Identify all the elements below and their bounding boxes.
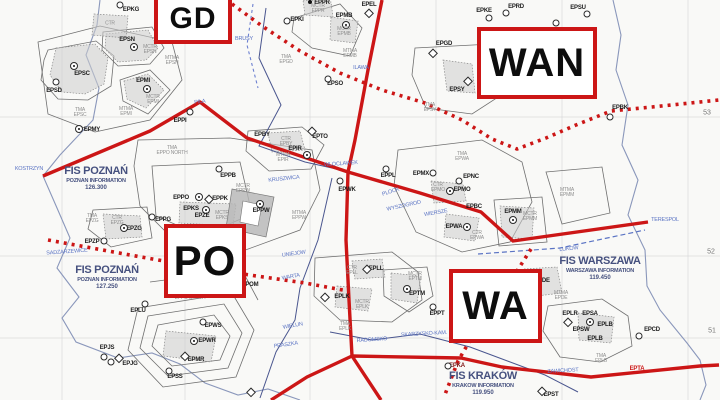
- airfield-circle-dot-icon: [256, 200, 264, 208]
- airfield-label-EPTO: EPTO: [312, 134, 327, 140]
- airfield-label-EPSY: EPSY: [449, 87, 464, 93]
- airfield-label-EPMX: EPMX: [413, 171, 429, 177]
- airfield-label-EPCD: EPCD: [644, 327, 660, 333]
- airfield-label-EPBC: EPBC: [466, 204, 482, 210]
- fis-title: FIS WARSZAWA: [559, 255, 640, 267]
- sector-box-gd: GD: [154, 0, 232, 44]
- town-label-WLOCLAWEK: WLOCLAWEK: [324, 161, 358, 169]
- airfield-circle-icon: [149, 214, 156, 221]
- airspace-zone-label: MTMA EPIR: [276, 153, 290, 164]
- airfield-label-EPMM: EPMM: [504, 209, 521, 215]
- town-label-TERESPOL: TERESPOL: [651, 218, 679, 224]
- airfield-label-EPSU: EPSU: [570, 5, 586, 11]
- airfield-label-EPMB: EPMB: [336, 13, 353, 19]
- town-label-WARTA: WARTA: [282, 274, 301, 283]
- town-label-PILA: PILA: [194, 99, 206, 106]
- airfield-circle-icon: [284, 18, 291, 25]
- sector-box-wa: WA: [449, 269, 542, 343]
- airfield-label-EPPW: EPPW: [253, 208, 270, 214]
- airfield-label-EPJG: EPJG: [122, 361, 137, 367]
- airfield-label-EPKE: EPKE: [476, 8, 492, 14]
- airfield-diamond-icon: [246, 387, 255, 396]
- airspace-zone-label: MCTR EPPR: [311, 4, 325, 15]
- airspace-zone-label: MCTR EPMB: [337, 27, 351, 38]
- airfield-circle-dot-icon: [446, 187, 454, 195]
- airfield-circle-icon: [117, 2, 124, 9]
- town-label-BRUSY: BRUSY: [235, 37, 253, 43]
- airfield-circle-icon: [200, 319, 207, 326]
- town-label-PRASZKA: PRASZKA: [274, 341, 299, 350]
- airfield-circle-dot-icon: [143, 85, 151, 93]
- town-label-ZAWICHOST: ZAWICHOST: [547, 368, 578, 375]
- airfield-label-EPSD: EPSD: [46, 88, 62, 94]
- airfield-label-EPPL: EPPL: [381, 173, 396, 179]
- airspace-zone-label: TMA EPZG: [86, 214, 99, 225]
- airfield-label-EPMI: EPMI: [136, 78, 150, 84]
- airfield-circle-icon: [216, 166, 223, 173]
- town-label-KOSTRZYN: KOSTRZYN: [15, 167, 43, 173]
- airfield-circle-dot-icon: [586, 318, 594, 326]
- airfield-circle-icon: [187, 109, 194, 116]
- airfield-label-EPMY: EPMY: [84, 127, 100, 133]
- airfield-label-EPWS: EPWS: [205, 323, 222, 329]
- airfield-label-EPLB: EPLB: [597, 322, 612, 328]
- airfield-label-EPSC: EPSC: [74, 71, 90, 77]
- town-label-WIERSZE: WIERSZE: [424, 209, 448, 219]
- airfield-circle-icon: [607, 114, 614, 121]
- airfield-circle-dot-icon: [70, 62, 78, 70]
- airfield-label-EPLB: EPLB: [587, 336, 602, 342]
- airfield-label-EPTA: EPTA: [630, 366, 645, 372]
- airspace-zone-label: TMA EPLB: [595, 354, 607, 365]
- airfield-label-EPLR: EPLR: [562, 311, 577, 317]
- town-label-SADZARZEWICE: SADZARZEWICE: [46, 249, 88, 258]
- airspace-zone-label: MCTR EPKS: [215, 211, 229, 222]
- airspace-zone-label: MCTR EPMM: [523, 212, 537, 223]
- airspace-zone-label: CTR: [105, 21, 115, 26]
- poland-fis-airspace-map: EPKGEPSNEPSCEPSDEPMYEPMIEPPIEPPREPELEPKI…: [0, 0, 720, 400]
- airspace-zone-label: MTMA EPDE: [554, 291, 568, 302]
- map-labels-layer: EPKGEPSNEPSCEPSDEPMYEPMIEPPIEPPREPELEPKI…: [0, 0, 720, 400]
- airfield-circle-icon: [430, 304, 437, 311]
- airspace-zone-label: TMA EPGD: [279, 55, 292, 66]
- airspace-zone-label: TMA EPWA: [455, 152, 469, 163]
- airspace-zone-label: MTMA EPMB: [343, 49, 357, 60]
- airfield-label-EPPI: EPPI: [174, 118, 187, 124]
- airfield-label-EPRD: EPRD: [508, 4, 524, 10]
- airfield-label-EPST: EPST: [544, 392, 559, 398]
- airspace-zone-label: MTMA EPMI: [119, 107, 133, 118]
- airfield-circle-dot-icon: [190, 337, 198, 345]
- airfield-label-EPPK: EPPK: [212, 196, 228, 202]
- airfield-circle-icon: [456, 178, 463, 185]
- town-label-UNIEJOW: UNIEJOW: [282, 250, 307, 259]
- airfield-label-EPKS: EPKS: [183, 206, 199, 212]
- airfield-circle-dot-icon: [403, 285, 411, 293]
- fis-subtitle: POZNAN INFORMATION: [64, 178, 128, 184]
- airspace-zone-label: CTR EPZG: [111, 216, 124, 227]
- latitude-label-51: 51: [708, 327, 716, 334]
- airfield-label-EPWA: EPWA: [446, 224, 463, 230]
- latitude-label-52: 52: [707, 248, 715, 255]
- airfield-diamond-icon: [320, 292, 329, 301]
- airfield-label-EPPO: EPPO: [173, 195, 189, 201]
- fis-frequency: 127.250: [75, 284, 139, 290]
- fis-subtitle: POZNAN INFORMATION: [75, 277, 139, 283]
- airspace-zone-label: MTMA EPSN: [165, 56, 179, 67]
- airspace-zone-label: MTMA EPPW: [292, 211, 306, 222]
- airfield-circle-dot-icon: [130, 43, 138, 51]
- town-label-KRUSZWICA: KRUSZWICA: [268, 176, 300, 185]
- airspace-zone-label: CTR EPWA: [470, 231, 484, 242]
- fis-subtitle: WARSZAWA INFORMATION: [559, 268, 640, 274]
- airfield-circle-dot-icon: [195, 193, 203, 201]
- town-label-SKARZYSKO-KAM.: SKARZYSKO-KAM.: [401, 331, 447, 339]
- town-label-LUKOW: LUKOW: [559, 246, 579, 254]
- fis-title: FIS POZNAŃ: [75, 264, 139, 276]
- fis-info-block-3: FIS KRAKÓWKRAKOW INFORMATION119.950: [449, 370, 517, 396]
- airfield-label-EPPB: EPPB: [220, 173, 236, 179]
- airfield-label-EPJS: EPJS: [100, 345, 115, 351]
- airfield-label-EPWR: EPWR: [198, 338, 215, 344]
- airfield-circle-icon: [142, 301, 149, 308]
- airspace-zone-label: CTR EPBY: [280, 137, 293, 148]
- airfield-label-EPSW: EPSW: [573, 327, 590, 333]
- airspace-zone-label: TMA EPSY: [424, 103, 437, 114]
- town-label-ILAWA: ILAWA: [353, 66, 369, 72]
- airspace-zone-label: MCTR EPTM: [408, 272, 422, 283]
- airfield-circle-icon: [101, 238, 108, 245]
- airfield-label-EPBY: EPBY: [254, 132, 270, 138]
- airfield-circle-icon: [166, 368, 173, 375]
- airspace-zone-label: MCTR EPSN: [143, 45, 157, 56]
- town-label-WYSZOGROD: WYSZOGROD: [386, 201, 421, 214]
- airfield-circle-icon: [337, 178, 344, 185]
- airfield-circle-icon: [53, 79, 60, 86]
- latitude-label-53: 53: [703, 109, 711, 116]
- airspace-zone-label: MCTR EPPW: [236, 184, 250, 195]
- airfield-label-EPSA: EPSA: [582, 311, 598, 317]
- airspace-zone-label: MCTR EPLK: [355, 300, 369, 311]
- airfield-label-EPBK: EPBK: [612, 105, 628, 111]
- fis-frequency: 119.450: [559, 275, 640, 281]
- airfield-circle-icon: [503, 10, 510, 17]
- airfield-label-EPZG: EPZG: [126, 226, 142, 232]
- airfield-label-EPMO: EPMO: [454, 187, 471, 193]
- town-label-PLOCK: PLOCK: [382, 188, 401, 199]
- sector-box-wan: WAN: [477, 27, 597, 99]
- fis-frequency: 126.300: [64, 185, 128, 191]
- fis-frequency: 119.950: [449, 390, 517, 396]
- fis-info-block-0: FIS POZNAŃPOZNAN INFORMATION126.300: [64, 165, 128, 191]
- airspace-zone-label: TMA EPLK: [339, 322, 351, 333]
- airspace-zone-label: MTMA EPMM: [560, 188, 574, 199]
- airfield-diamond-icon: [428, 48, 437, 57]
- airfield-label-EPZP: EPZP: [85, 239, 100, 245]
- airfield-diamond-icon: [563, 317, 572, 326]
- sector-box-po: PO: [164, 224, 246, 298]
- airfield-circle-icon: [553, 20, 560, 27]
- airspace-zone-label: MCTR EPMI: [146, 95, 160, 106]
- airfield-label-EPPT: EPPT: [430, 311, 445, 317]
- airfield-label-EPKI: EPKI: [290, 17, 303, 23]
- airfield-label-EPLK: EPLK: [334, 294, 349, 300]
- airfield-label-EPWK: EPWK: [338, 187, 355, 193]
- airspace-zone-label: CTR EPMO: [431, 183, 445, 194]
- town-label-WIELUN: WIELUN: [283, 322, 304, 331]
- airfield-circle-icon: [486, 15, 493, 22]
- airfield-circle-icon: [325, 76, 332, 83]
- town-label-RADOMSKO: RADOMSKO: [357, 337, 388, 345]
- airfield-circle-icon: [101, 354, 108, 361]
- airfield-label-EPLU: EPLU: [130, 308, 145, 314]
- airfield-circle-icon: [584, 11, 591, 18]
- airfield-circle-dot-icon: [303, 151, 311, 159]
- fis-subtitle: KRAKOW INFORMATION: [449, 383, 517, 389]
- airfield-circle-icon: [430, 170, 437, 177]
- airfield-label-EPTM: EPTM: [409, 291, 425, 297]
- fis-info-block-1: FIS POZNAŃPOZNAN INFORMATION127.250: [75, 264, 139, 290]
- airfield-diamond-icon: [364, 8, 373, 17]
- airfield-label-EPGD: EPGD: [436, 41, 452, 47]
- airfield-circle-icon: [108, 359, 115, 366]
- airfield-circle-icon: [636, 333, 643, 340]
- airfield-label-EPEL: EPEL: [362, 2, 377, 8]
- airfield-circle-icon: [383, 166, 390, 173]
- fis-title: FIS KRAKÓW: [449, 370, 517, 382]
- airfield-circle-icon: [445, 363, 452, 370]
- airspace-zone-label: CTR EPLL: [346, 266, 357, 277]
- airfield-label-EPPG: EPPG: [155, 217, 171, 223]
- fis-title: FIS POZNAŃ: [64, 165, 128, 177]
- airfield-label-EPSS: EPSS: [167, 374, 182, 380]
- airfield-label-EPKG: EPKG: [123, 7, 139, 13]
- airspace-zone-label: TMA EPSC: [74, 108, 87, 119]
- airfield-label-EPNC: EPNC: [463, 174, 479, 180]
- airspace-zone-label: TMA EPPO NORTH: [157, 146, 188, 157]
- airfield-diamond-icon: [463, 76, 472, 85]
- fis-info-block-2: FIS WARSZAWAWARSZAWA INFORMATION119.450: [559, 255, 640, 281]
- airfield-circle-dot-icon: [509, 216, 517, 224]
- airfield-circle-dot-icon: [75, 125, 83, 133]
- airfield-label-EPZE: EPZE: [195, 213, 210, 219]
- airfield-label-EPMR: EPMR: [188, 357, 205, 363]
